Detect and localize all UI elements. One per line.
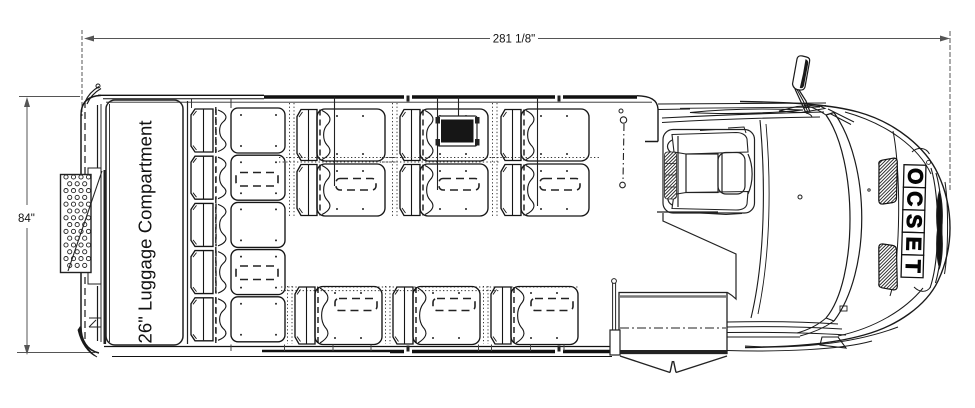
svg-text:C: C: [903, 191, 926, 207]
svg-text:26" Luggage Compartment: 26" Luggage Compartment: [135, 121, 156, 344]
svg-text:E: E: [901, 236, 924, 251]
svg-text:84": 84": [18, 213, 35, 225]
svg-text:T: T: [901, 259, 924, 273]
svg-text:S: S: [902, 214, 925, 229]
svg-text:281 1/8": 281 1/8": [493, 34, 535, 46]
svg-text:O: O: [903, 168, 926, 185]
